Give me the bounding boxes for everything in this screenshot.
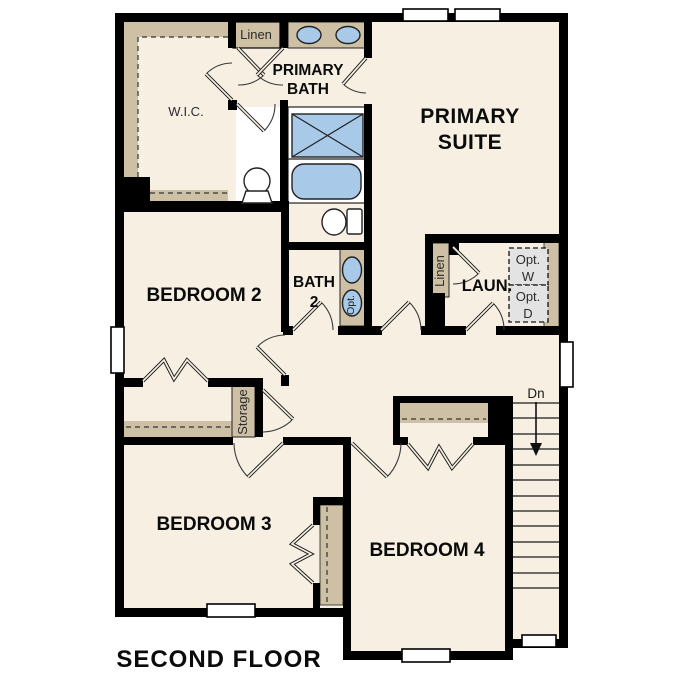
label-primary-bath-2: BATH [287, 81, 329, 98]
floor-plan-page: W.I.C. Linen PRIMARY BATH PRIMARY SUITE … [0, 0, 687, 687]
label-primary-bath-1: PRIMARY [273, 62, 345, 79]
wic-shelf-top [124, 22, 228, 37]
label-bedroom3: BEDROOM 3 [156, 514, 271, 535]
label-bedroom2: BEDROOM 2 [146, 285, 261, 306]
label-primary-suite-2: SUITE [438, 131, 502, 154]
pedestal-sink [244, 168, 270, 194]
bedroom3-closet-shelf [320, 505, 343, 605]
window [455, 9, 500, 21]
window [403, 9, 448, 21]
toilet-tank [347, 209, 362, 234]
label-storage: Storage [235, 389, 250, 435]
window [207, 604, 255, 617]
wic-shelf-left [124, 22, 138, 177]
window [402, 649, 450, 662]
label-opt-sink: Opt. [345, 295, 357, 315]
label-laundry: LAUN. [462, 277, 512, 295]
label-linen-top: Linen [240, 27, 272, 42]
label-primary-suite-1: PRIMARY [420, 105, 520, 128]
label-opt-washer-2: W [522, 269, 535, 284]
window [111, 327, 124, 373]
label-opt-dryer-1: Opt. [516, 289, 541, 304]
window [560, 342, 573, 387]
pedestal-sink-base [242, 191, 272, 203]
label-bedroom4: BEDROOM 4 [369, 540, 485, 561]
wic-shelf-bottom [150, 190, 228, 202]
bathtub [292, 164, 361, 199]
label-bath2-1: BATH [293, 274, 335, 291]
label-opt-dryer-2: D [523, 306, 532, 321]
vanity-sink [297, 27, 321, 44]
bedroom4-closet-shelf [400, 403, 488, 423]
floor-plan-svg: W.I.C. Linen PRIMARY BATH PRIMARY SUITE … [0, 0, 687, 687]
label-wic: W.I.C. [168, 104, 203, 119]
label-opt-washer-1: Opt. [516, 252, 541, 267]
vanity-sink [336, 27, 360, 44]
label-bath2-2: 2 [310, 294, 319, 311]
label-linen-laundry: Linen [432, 255, 447, 287]
bedroom2-closet-shelf [124, 421, 232, 437]
toilet-bowl [322, 209, 346, 235]
bath2-sink [343, 257, 362, 283]
label-stairs-down: Dn [527, 386, 544, 401]
window [522, 635, 556, 647]
page-title: SECOND FLOOR [116, 646, 321, 673]
